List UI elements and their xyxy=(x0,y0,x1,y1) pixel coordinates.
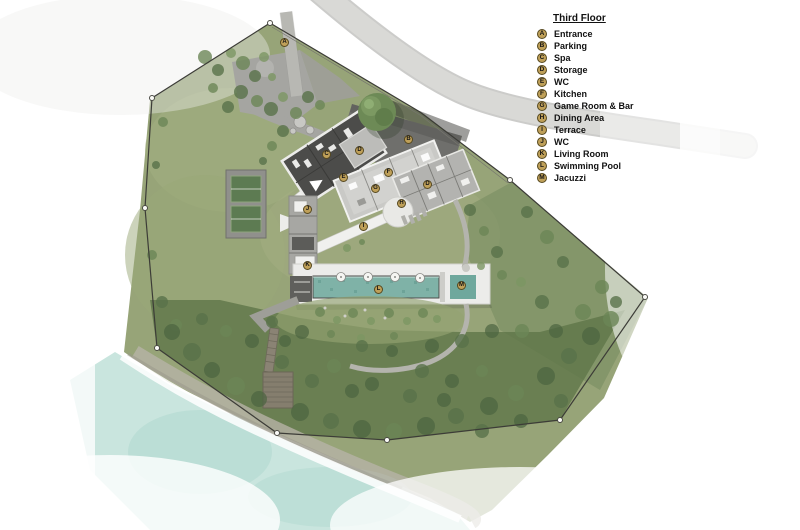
legend-row: DStorage xyxy=(537,64,634,76)
plan-marker-i: I xyxy=(359,222,368,231)
legend-title: Third Floor xyxy=(553,13,634,24)
legend-badge: C xyxy=(537,53,547,63)
plan-marker-k: K xyxy=(303,261,312,270)
legend-badge: L xyxy=(537,161,547,171)
legend-row: CSpa xyxy=(537,52,634,64)
legend: Third Floor AEntrance BParking CSpa DSto… xyxy=(537,13,634,184)
legend-row: ITerrace xyxy=(537,124,634,136)
legend-label: Swimming Pool xyxy=(554,161,621,171)
legend-row: AEntrance xyxy=(537,28,634,40)
legend-label: Storage xyxy=(554,65,588,75)
plan-marker-d: D xyxy=(355,146,364,155)
legend-label: Kitchen xyxy=(554,89,587,99)
plan-marker-b: B xyxy=(404,135,413,144)
legend-row: GGame Room & Bar xyxy=(537,100,634,112)
plan-marker-j: J xyxy=(303,205,312,214)
legend-badge: G xyxy=(537,101,547,111)
legend-row: KLiving Room xyxy=(537,148,634,160)
legend-label: Living Room xyxy=(554,149,609,159)
legend-badge: B xyxy=(537,41,547,51)
legend-badge: J xyxy=(537,137,547,147)
legend-row: FKitchen xyxy=(537,88,634,100)
legend-row: EWC xyxy=(537,76,634,88)
legend-label: Spa xyxy=(554,53,571,63)
legend-badge: E xyxy=(537,77,547,87)
legend-badge: H xyxy=(537,113,547,123)
legend-row: LSwimming Pool xyxy=(537,160,634,172)
plan-marker-e: E xyxy=(339,173,348,182)
legend-label: Game Room & Bar xyxy=(554,101,634,111)
legend-row: MJacuzzi xyxy=(537,172,634,184)
legend-row: JWC xyxy=(537,136,634,148)
plan-marker-h: H xyxy=(397,199,406,208)
legend-badge: A xyxy=(537,29,547,39)
plan-marker-g: G xyxy=(371,184,380,193)
tennis-court xyxy=(226,170,266,238)
legend-label: Dining Area xyxy=(554,113,604,123)
plan-marker-d2: D xyxy=(423,180,432,189)
plan-marker-l: L xyxy=(374,285,383,294)
legend-badge: I xyxy=(537,125,547,135)
legend-label: WC xyxy=(554,137,569,147)
legend-label: Entrance xyxy=(554,29,593,39)
legend-label: Parking xyxy=(554,41,587,51)
plan-marker-f: F xyxy=(384,168,393,177)
legend-label: Jacuzzi xyxy=(554,173,586,183)
site-plan-page: A B C D E F G H I J K L M D Third Floor … xyxy=(0,0,800,530)
legend-badge: D xyxy=(537,65,547,75)
legend-badge: M xyxy=(537,173,547,183)
site-plan-drawing xyxy=(0,0,800,530)
legend-label: Terrace xyxy=(554,125,586,135)
plan-marker-a: A xyxy=(280,38,289,47)
plan-marker-m: M xyxy=(457,281,466,290)
legend-row: HDining Area xyxy=(537,112,634,124)
legend-badge: F xyxy=(537,89,547,99)
plan-marker-c: C xyxy=(322,150,331,159)
legend-row: BParking xyxy=(537,40,634,52)
legend-label: WC xyxy=(554,77,569,87)
legend-badge: K xyxy=(537,149,547,159)
